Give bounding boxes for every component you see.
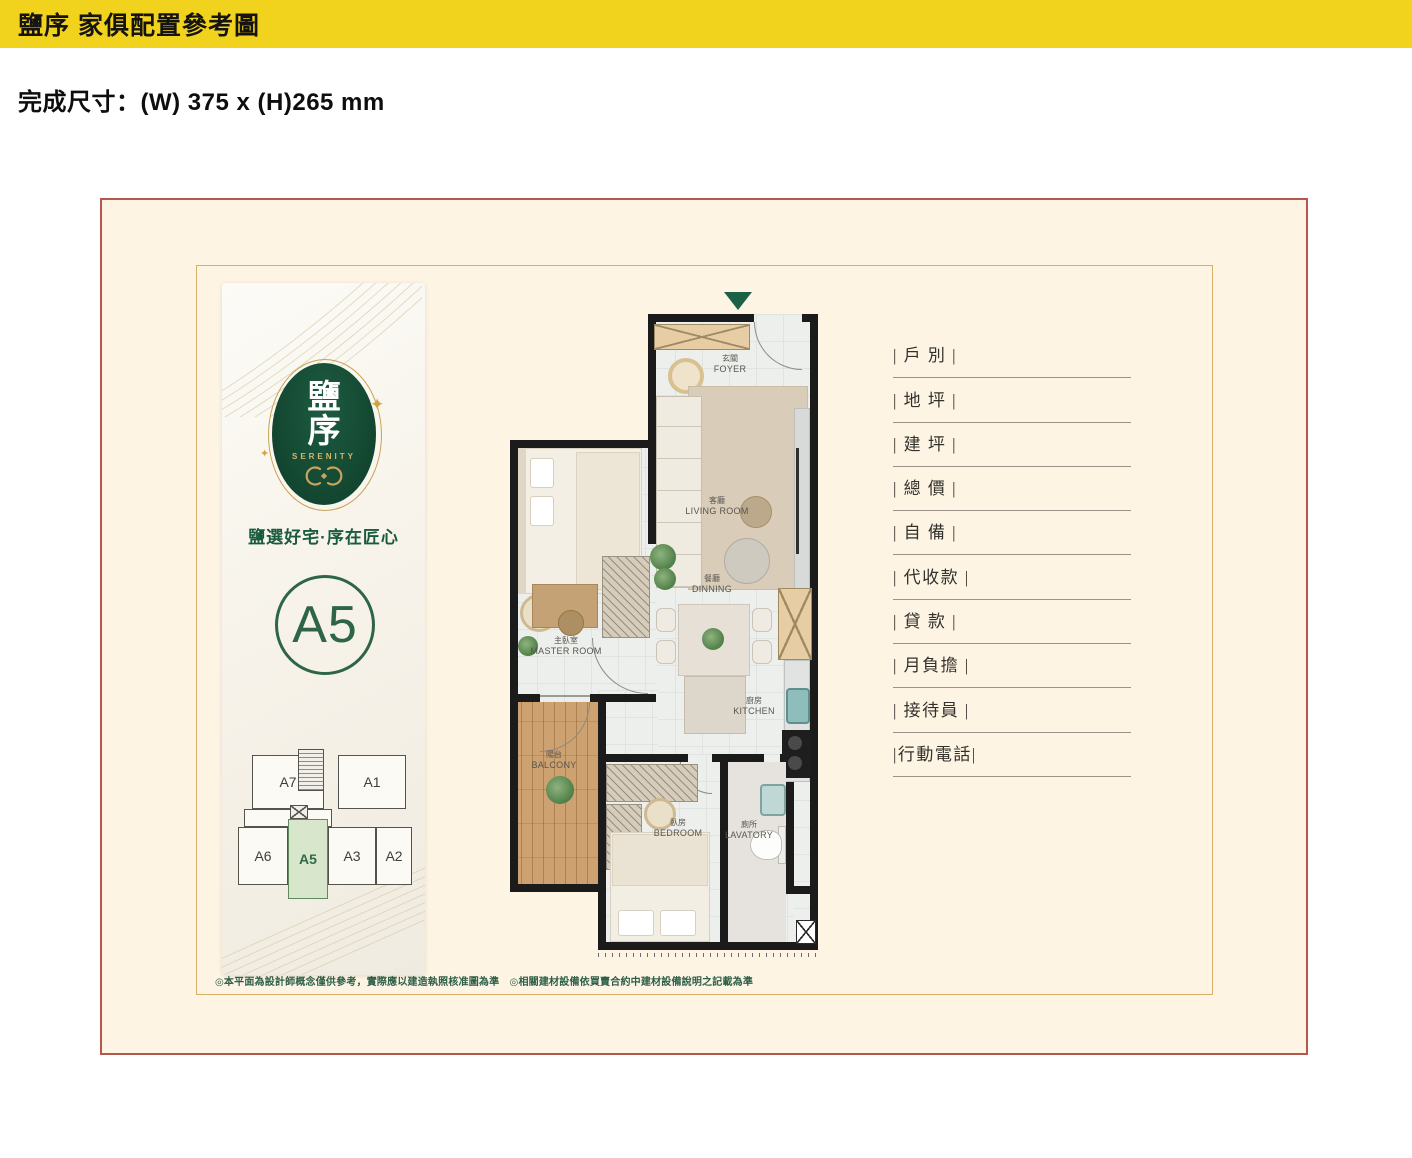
cooktop-burner <box>788 756 802 770</box>
field-row-loan: | 貸 款 | <box>893 600 1131 644</box>
keyplan-unit-a6: A6 <box>238 827 288 885</box>
bedroom-bed-blanket <box>612 834 708 886</box>
master-bed-headboard <box>518 448 526 594</box>
field-row-building-area: | 建 坪 | <box>893 423 1131 467</box>
field-row-down-payment: | 自 備 | <box>893 511 1131 555</box>
tv-screen <box>796 448 799 554</box>
entrance-arrow-icon <box>724 292 752 310</box>
wall <box>648 442 656 544</box>
wall <box>598 702 606 950</box>
wall <box>598 694 656 702</box>
serenity-logo-badge: 鹽 序 SERENITY <box>272 363 376 505</box>
keyplan-elevator <box>290 805 308 819</box>
finished-size-text: 完成尺寸：(W) 375 x (H)265 mm <box>18 82 385 117</box>
room-label-foyer: 玄關FOYER <box>685 354 775 375</box>
field-row-total-price: | 總 價 | <box>893 467 1131 511</box>
brand-tagline: 鹽選好宅·序在匠心 <box>222 523 425 548</box>
logo-char-top: 鹽 <box>308 380 341 414</box>
wall <box>510 440 518 702</box>
master-wardrobe <box>602 556 650 638</box>
lavatory-sink <box>760 784 786 816</box>
field-row-unit: | 戶 別 | <box>893 334 1131 378</box>
keyplan-unit-a3: A3 <box>328 827 376 885</box>
disclaimer-note: ◎本平面為設計師概念僅供參考，實際應以建造執照核准圖為準 ◎相關建材設備依買賣合… <box>215 973 975 988</box>
dining-centerpiece-plant <box>702 628 724 650</box>
room-label-kitchen: 廚房KITCHEN <box>709 696 799 717</box>
wall <box>510 884 606 892</box>
sparkle-icon: ✦ <box>370 395 384 415</box>
room-label-living-room: 客廳LIVING ROOM <box>672 496 762 517</box>
field-row-collection: | 代收款 | <box>893 555 1131 599</box>
balcony-door-line <box>540 695 590 697</box>
sparkle-icon: ✦ <box>260 447 269 460</box>
logo-char-bottom: 序 <box>308 414 341 448</box>
floor-plan: 玄關FOYER 客廳LIVING ROOM 餐廳DINNING 廚房KITCHE… <box>502 292 822 962</box>
field-row-land-area: | 地 坪 | <box>893 378 1131 422</box>
wall <box>510 696 518 892</box>
wall <box>598 754 688 762</box>
flyer-page: 鹽序 家俱配置參考圖 完成尺寸：(W) 375 x (H)265 mm 鹽 序 … <box>0 0 1412 1158</box>
foyer-cabinet <box>654 324 750 350</box>
room-label-dinning: 餐廳DINNING <box>667 574 757 595</box>
pillow <box>660 910 696 936</box>
dining-chair <box>752 608 772 632</box>
unit-badge: A5 <box>275 575 375 675</box>
pillow <box>618 910 654 936</box>
cooktop-burner <box>788 736 802 750</box>
plant <box>650 544 676 570</box>
field-row-monthly-payment: | 月負擔 | <box>893 644 1131 688</box>
balcony-plant <box>546 776 574 804</box>
page-title: 鹽序 家俱配置參考圖 <box>18 6 260 42</box>
wall <box>510 440 656 448</box>
pillow <box>530 496 554 526</box>
wall <box>648 314 754 322</box>
dimension-ticks <box>598 953 818 957</box>
keyplan-stairwell <box>298 749 324 791</box>
wall <box>510 694 540 702</box>
building-key-plan: A7 A1 A6 A5 A3 A2 <box>238 743 418 909</box>
bedroom-wardrobe <box>606 764 698 802</box>
wall <box>598 942 818 950</box>
kitchen-tall-cabinet <box>778 588 812 660</box>
room-label-balcony: 陽台BALCONY <box>509 750 599 771</box>
field-row-mobile-phone: |行動電話| <box>893 733 1131 777</box>
wall <box>786 886 818 894</box>
desk-chair <box>558 610 584 636</box>
info-fields: | 戶 別 | | 地 坪 | | 建 坪 | | 總 價 | | 自 備 | … <box>893 334 1131 777</box>
field-row-receptionist: | 接待員 | <box>893 688 1131 732</box>
dining-chair <box>752 640 772 664</box>
keyplan-unit-a5: A5 <box>288 819 328 899</box>
keyplan-unit-a2: A2 <box>376 827 412 885</box>
dining-chair <box>656 640 676 664</box>
title-banner: 鹽序 家俱配置參考圖 <box>0 0 1412 48</box>
logo-emblem-icon <box>301 464 347 488</box>
pillow <box>530 458 554 488</box>
logo-wordmark: SERENITY <box>292 452 356 461</box>
brand-card: 鹽 序 SERENITY ✦ ✦ 鹽選好宅·序在匠心 A5 A7 A1 A6 A… <box>222 283 425 975</box>
room-label-lavatory: 廁所LAVATORY <box>704 820 794 841</box>
wall <box>720 754 728 950</box>
wall <box>728 754 764 762</box>
dining-chair <box>656 608 676 632</box>
shaft <box>796 920 816 944</box>
keyplan-unit-a1: A1 <box>338 755 406 809</box>
room-label-master-room: 主臥室MASTER ROOM <box>521 636 611 657</box>
